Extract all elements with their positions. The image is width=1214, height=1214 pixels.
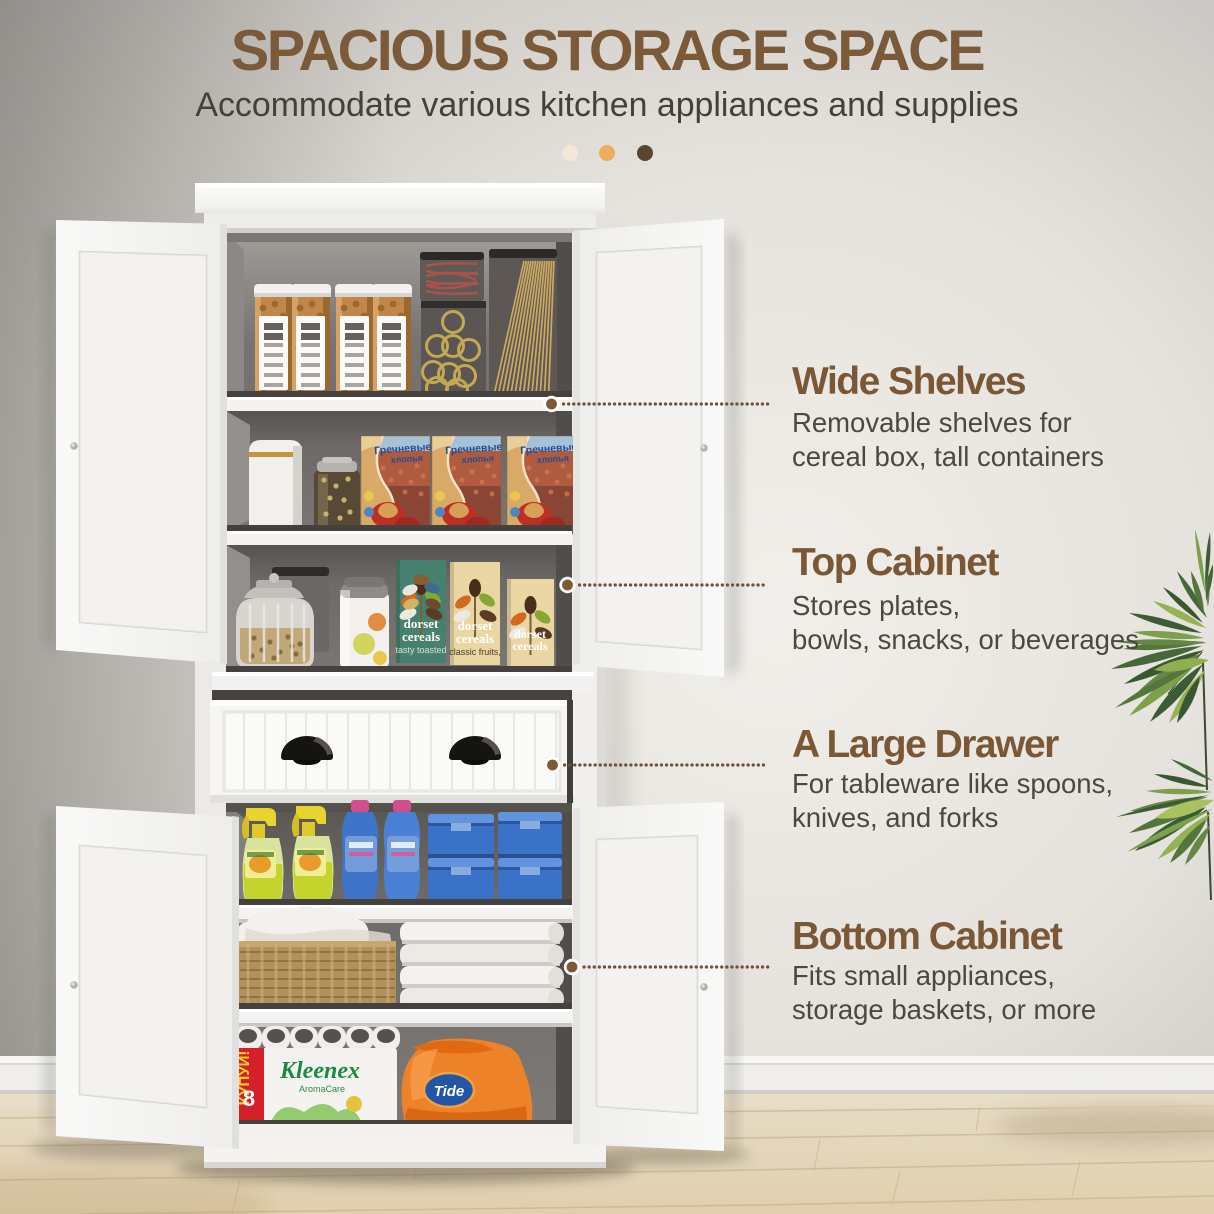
- svg-text:8: 8: [243, 1086, 255, 1111]
- svg-text:classic fruits,: classic fruits,: [449, 647, 501, 657]
- svg-text:tasty toasted: tasty toasted: [395, 645, 446, 655]
- svg-text:cereals: cereals: [402, 629, 440, 644]
- svg-text:cereals: cereals: [512, 639, 547, 653]
- svg-text:cereals: cereals: [456, 631, 494, 646]
- svg-text:AromaCare: AromaCare: [299, 1084, 345, 1094]
- svg-text:Tide: Tide: [434, 1083, 465, 1100]
- svg-text:Kleenex: Kleenex: [279, 1058, 360, 1084]
